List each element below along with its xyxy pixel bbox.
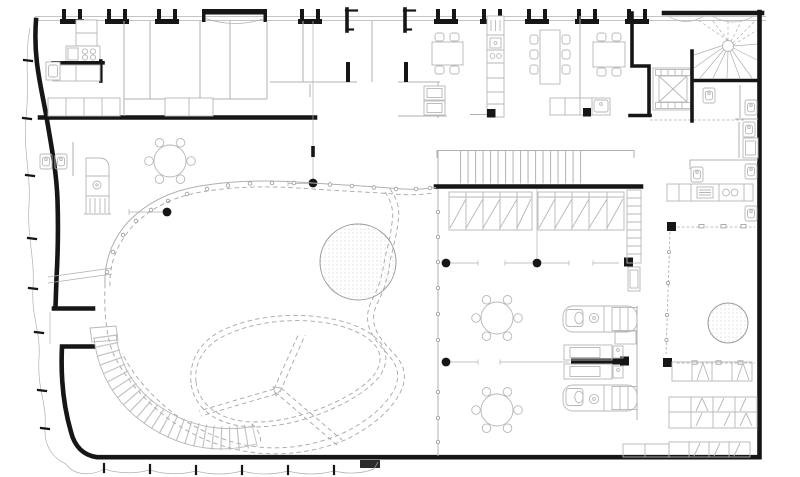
round-column — [442, 358, 451, 367]
facade-wavy-bottom — [66, 462, 378, 474]
round-column — [533, 259, 542, 268]
round-table-b — [472, 296, 523, 341]
round-column — [163, 208, 172, 217]
dining-table-2 — [593, 33, 625, 76]
service-kiosk — [84, 158, 111, 214]
floor-plan-canvas — [0, 0, 800, 477]
wc-corridor-right — [667, 88, 758, 221]
shelving-rows — [623, 362, 757, 457]
square-column — [667, 222, 676, 231]
wc-pod-a — [563, 306, 637, 332]
core-z-wall — [630, 13, 650, 116]
dining-table-1 — [432, 33, 463, 74]
facade-glazing-top — [35, 16, 766, 24]
skylight-circle-large — [320, 224, 396, 300]
kitchenette-counter — [667, 184, 753, 201]
straight-stair — [437, 150, 634, 167]
kitchen-tall-unit — [487, 16, 504, 118]
structural-columns — [129, 179, 755, 367]
void-blob — [105, 181, 436, 454]
kitchen-top-left — [46, 20, 213, 116]
dining-table-long — [530, 30, 570, 84]
facade-piers — [60, 9, 649, 31]
curved-stair — [90, 326, 261, 449]
round-table-a — [145, 139, 196, 184]
shelf-ladder-strip — [627, 190, 641, 291]
left-service-block — [40, 142, 112, 283]
floor-plan-drawing — [0, 0, 800, 477]
wall-shelf-unit — [424, 86, 445, 115]
wc-pod-b — [563, 385, 637, 411]
square-column — [624, 258, 633, 267]
skylight-circle-small — [708, 303, 748, 343]
wardrobe-bank-1 — [449, 192, 532, 230]
sink-fixture — [40, 154, 52, 169]
elevator — [650, 68, 744, 120]
wardrobe-bank-2 — [538, 192, 624, 230]
round-table-c — [472, 388, 523, 433]
sink-fixture — [55, 154, 67, 169]
mullion-ticks — [104, 464, 334, 474]
square-column — [663, 358, 672, 367]
round-column — [442, 259, 451, 268]
interior-partitions — [124, 16, 758, 456]
